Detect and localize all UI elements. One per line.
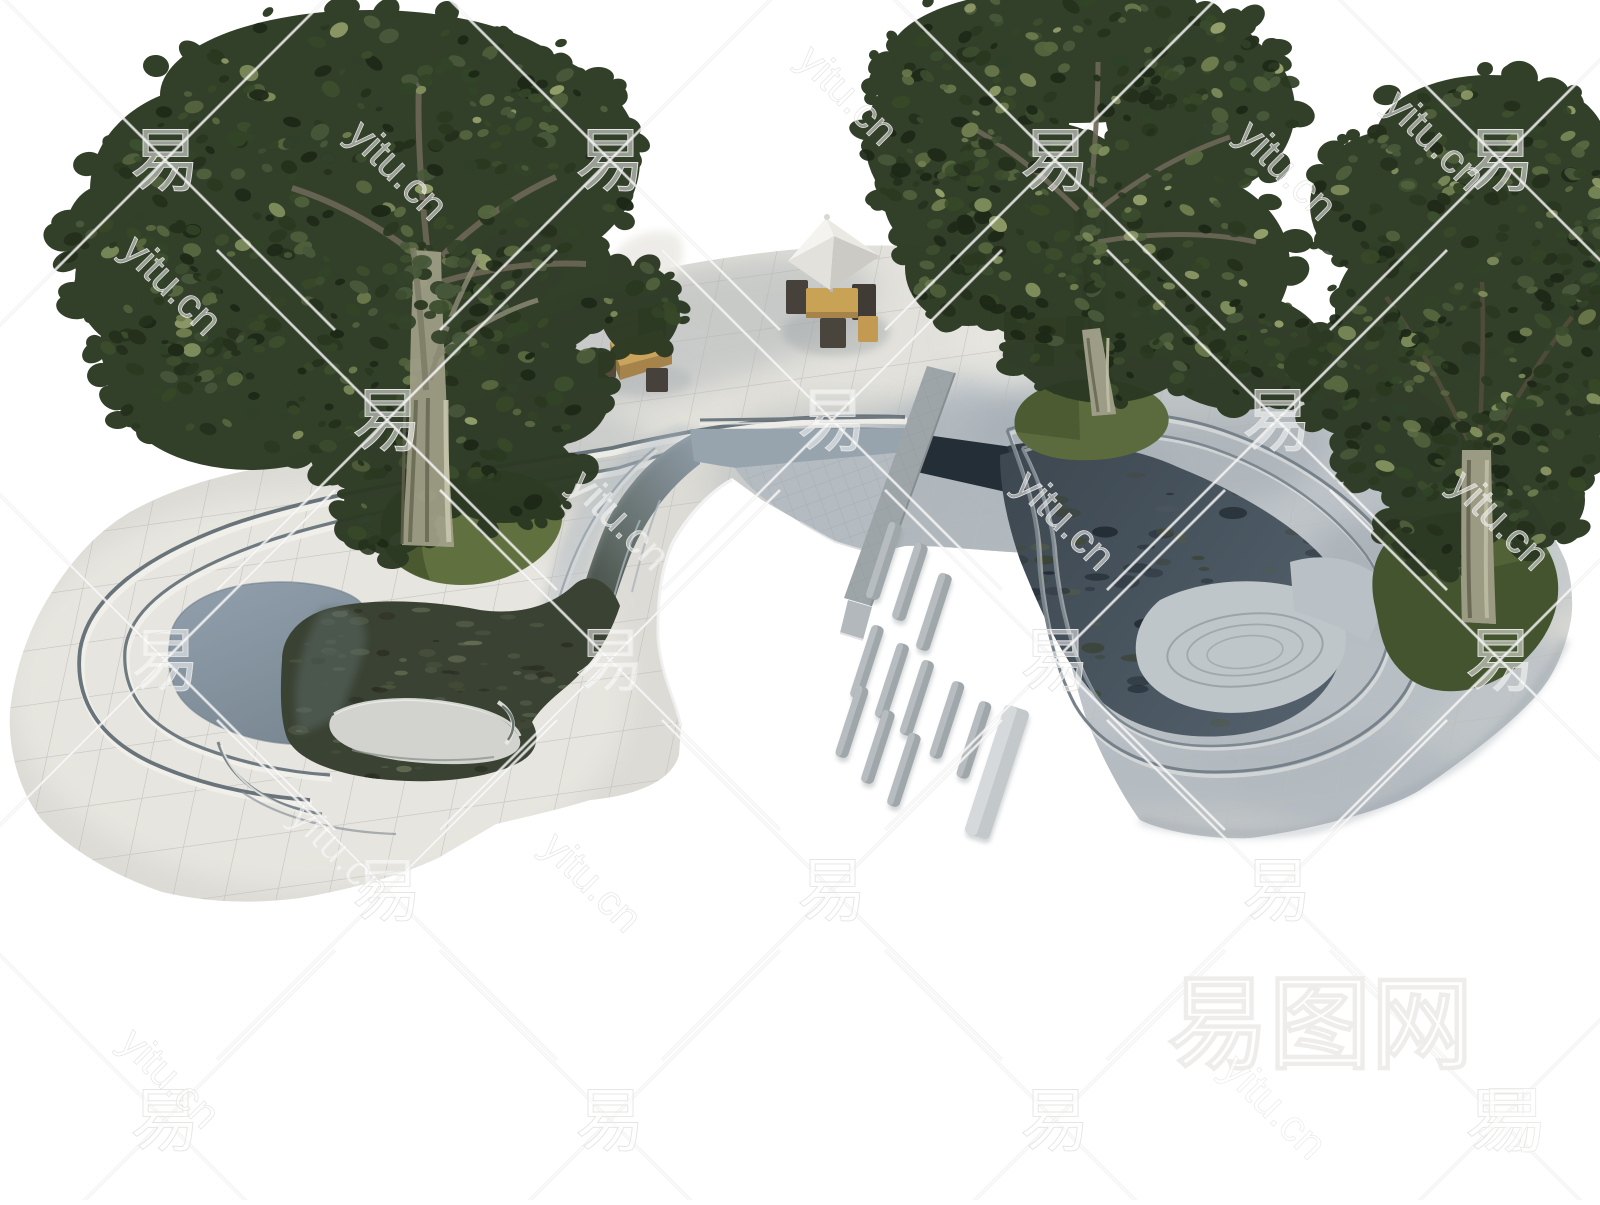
- svg-text:易: 易: [1020, 622, 1090, 700]
- svg-text:易: 易: [575, 1082, 645, 1160]
- svg-text:易: 易: [797, 852, 867, 930]
- svg-text:易: 易: [1020, 122, 1090, 200]
- svg-text:易: 易: [1020, 1082, 1090, 1160]
- svg-text:易: 易: [575, 622, 645, 700]
- svg-text:易图网: 易图网: [1167, 968, 1473, 1082]
- svg-text:易: 易: [130, 122, 200, 200]
- svg-text:易: 易: [797, 382, 867, 460]
- svg-text:易: 易: [130, 622, 200, 700]
- svg-text:易: 易: [575, 122, 645, 200]
- svg-text:易: 易: [1465, 622, 1535, 700]
- svg-text:易: 易: [1242, 852, 1312, 930]
- svg-text:易: 易: [1242, 382, 1312, 460]
- svg-text:易: 易: [1476, 1082, 1548, 1162]
- svg-text:易: 易: [352, 382, 422, 460]
